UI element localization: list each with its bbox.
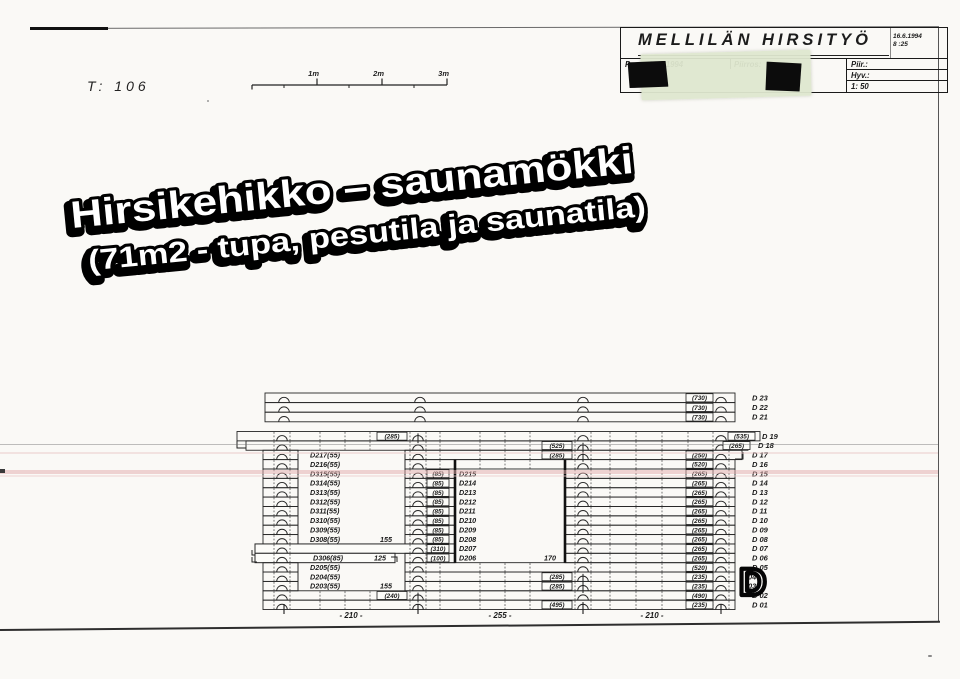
drawing-label: D 18 — [758, 441, 775, 450]
drawing-label: D206 — [459, 554, 477, 563]
drawing-label: D211 — [459, 507, 476, 516]
stamp-d: D — [739, 562, 766, 604]
drawing-label: (265) — [692, 509, 707, 516]
drawing-label: D 22 — [752, 403, 769, 412]
drawing-label: (265) — [692, 546, 707, 553]
drawing-label: 125 — [374, 554, 387, 563]
scale-bar: 1m 2m 3m — [245, 60, 460, 95]
drawing-label: D212 — [459, 497, 476, 506]
drawing-label: (250) — [692, 452, 707, 459]
drawing-label: (85) — [432, 509, 443, 516]
drawing-label: D 23 — [752, 393, 769, 402]
drawing-label: (285) — [550, 584, 565, 591]
drawing-label: (85) — [432, 490, 443, 497]
drawing-label: D 11 — [752, 507, 767, 516]
drawing-label: (85) — [432, 518, 443, 525]
drawing-label: (100) — [431, 555, 446, 562]
drawing-label: D 15 — [752, 469, 769, 478]
title-block-divider — [890, 28, 891, 58]
drawing-label: (265) — [692, 471, 707, 478]
drawing-label: D214 — [459, 479, 476, 488]
drawing-label: (285) — [385, 434, 400, 441]
drawing-label: (265) — [729, 443, 744, 450]
drawing-label: D 08 — [752, 535, 769, 544]
drawing-label: D308(55) — [310, 535, 341, 544]
drawing-label: (240) — [385, 593, 400, 600]
drawing-label: (85) — [432, 499, 443, 506]
drawing-label: (85) — [432, 527, 443, 534]
scanned-blueprint-page: MELLILÄN HIRSITYÖ 16.6.1994 8 :25 Pvm.: … — [0, 0, 960, 679]
print-datetime: 16.6.1994 8 :25 — [893, 33, 922, 49]
drawing-label: D215 — [459, 469, 477, 478]
hyv-field: Hyv.: — [851, 71, 870, 80]
drawing-label: - 210 - — [339, 611, 362, 620]
drawing-label: 155 — [380, 582, 393, 591]
drawing-label: D203(55) — [310, 582, 341, 591]
marker-blob-right — [764, 60, 802, 92]
drawing-label: D 21 — [752, 413, 768, 422]
print-date: 16.6.1994 — [893, 33, 922, 41]
drawing-label: - 255 - — [488, 611, 511, 620]
drawing-label: D205(55) — [310, 563, 341, 572]
log-row — [246, 441, 748, 450]
scale-2m-label: 2m — [372, 69, 384, 78]
drawing-label: (265) — [692, 499, 707, 506]
drawing-label: D204(55) — [310, 572, 341, 581]
piir-field: Piir.: — [851, 60, 868, 69]
drawing-label: (265) — [692, 537, 707, 544]
drawing-label: D208 — [459, 535, 476, 544]
drawing-label: D 10 — [752, 516, 769, 525]
big-title: Hirsikehikko – saunamökki (71m2 - tupa, … — [0, 100, 960, 330]
drawing-label: (525) — [550, 443, 565, 450]
drawing-label: D210 — [459, 516, 476, 525]
drawing-label: D 13 — [752, 488, 769, 497]
drawing-label: 170 — [544, 554, 556, 563]
scale-value: 1: 50 — [851, 82, 869, 91]
drawing-label: (85) — [432, 537, 443, 544]
drawing-label: (85) — [432, 480, 443, 487]
drawing-label: D213 — [459, 488, 476, 497]
drawing-label: D 14 — [752, 479, 769, 488]
print-time: 8 :25 — [893, 41, 922, 49]
company-name: MELLILÄN HIRSITYÖ — [621, 31, 889, 50]
log-row — [263, 600, 735, 609]
drawing-label: D313(55) — [310, 488, 341, 497]
drawing-label: (235) — [692, 602, 707, 609]
drawing-label: D216(55) — [310, 460, 341, 469]
drawing-label: D207 — [459, 544, 477, 553]
drawing-label: (490) — [692, 593, 707, 600]
drawing-label: D311(55) — [310, 507, 340, 516]
drawing-label: (495) — [550, 602, 565, 609]
drawing-label: (285) — [550, 452, 565, 459]
scale-1m-label: 1m — [308, 69, 319, 78]
drawing-label: D310(55) — [310, 516, 341, 525]
log-row — [263, 591, 735, 600]
drawing-label: (520) — [692, 565, 707, 572]
log-row — [237, 432, 760, 449]
drawing-label: (265) — [692, 527, 707, 534]
drawing-label: D306(85) — [313, 554, 344, 563]
drawing-label: D 16 — [752, 460, 769, 469]
drawing-label: D217(55) — [310, 451, 341, 460]
drawing-label: - 210 - — [640, 611, 663, 620]
drawing-label: D314(55) — [310, 479, 341, 488]
scale-3m-label: 3m — [438, 69, 449, 78]
drawing-label: (265) — [692, 518, 707, 525]
drawing-label: (235) — [692, 584, 707, 591]
drawing-label: (535) — [734, 434, 749, 441]
drawing-label: (730) — [692, 395, 707, 402]
drawing-label: (520) — [692, 462, 707, 469]
drawing-label: (85) — [432, 471, 443, 478]
drawing-label: (265) — [692, 480, 707, 487]
drawing-label: D 09 — [752, 525, 769, 534]
title-block-divider — [846, 58, 847, 92]
drawing-label: D 07 — [752, 544, 769, 553]
drawing-label: D309(55) — [310, 525, 341, 534]
drawing-label: (265) — [692, 555, 707, 562]
drawing-label: (310) — [431, 546, 446, 553]
drawing-label: (730) — [692, 405, 707, 412]
drawing-label: D209 — [459, 525, 476, 534]
marker-blob-left — [626, 59, 669, 90]
drawing-label: (235) — [692, 574, 707, 581]
drawing-label: (285) — [550, 574, 565, 581]
drawing-label: D 17 — [752, 451, 769, 460]
drawing-label: (265) — [692, 490, 707, 497]
drawing-label: D 12 — [752, 497, 769, 506]
drawing-label: 155 — [380, 535, 393, 544]
drawing-label: D 19 — [762, 432, 779, 441]
drawing-label: (730) — [692, 414, 707, 421]
drawing-label: D312(55) — [310, 497, 341, 506]
drawing-label: D315(55) — [310, 469, 341, 478]
